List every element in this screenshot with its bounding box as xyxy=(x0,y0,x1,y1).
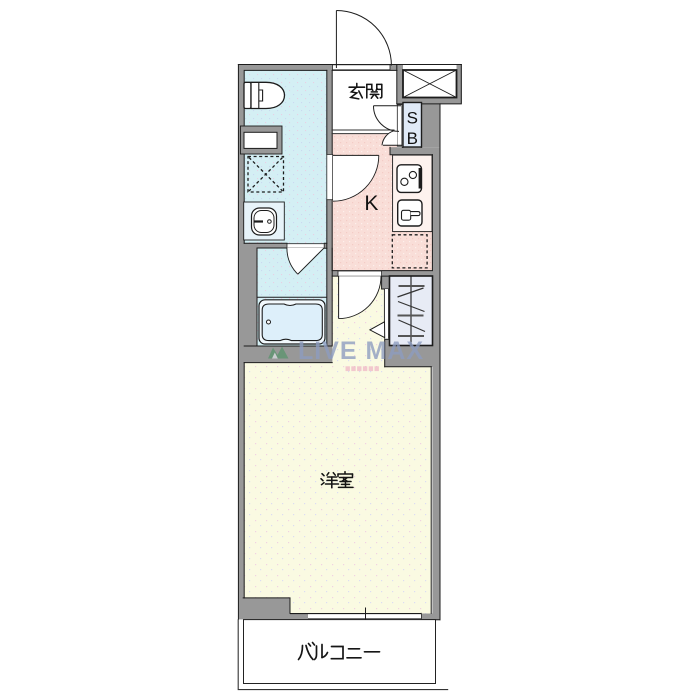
svg-text:K: K xyxy=(364,192,378,215)
svg-text:S: S xyxy=(407,109,418,128)
svg-text:B: B xyxy=(407,129,418,148)
svg-text:LIVE MAX: LIVE MAX xyxy=(298,337,424,365)
